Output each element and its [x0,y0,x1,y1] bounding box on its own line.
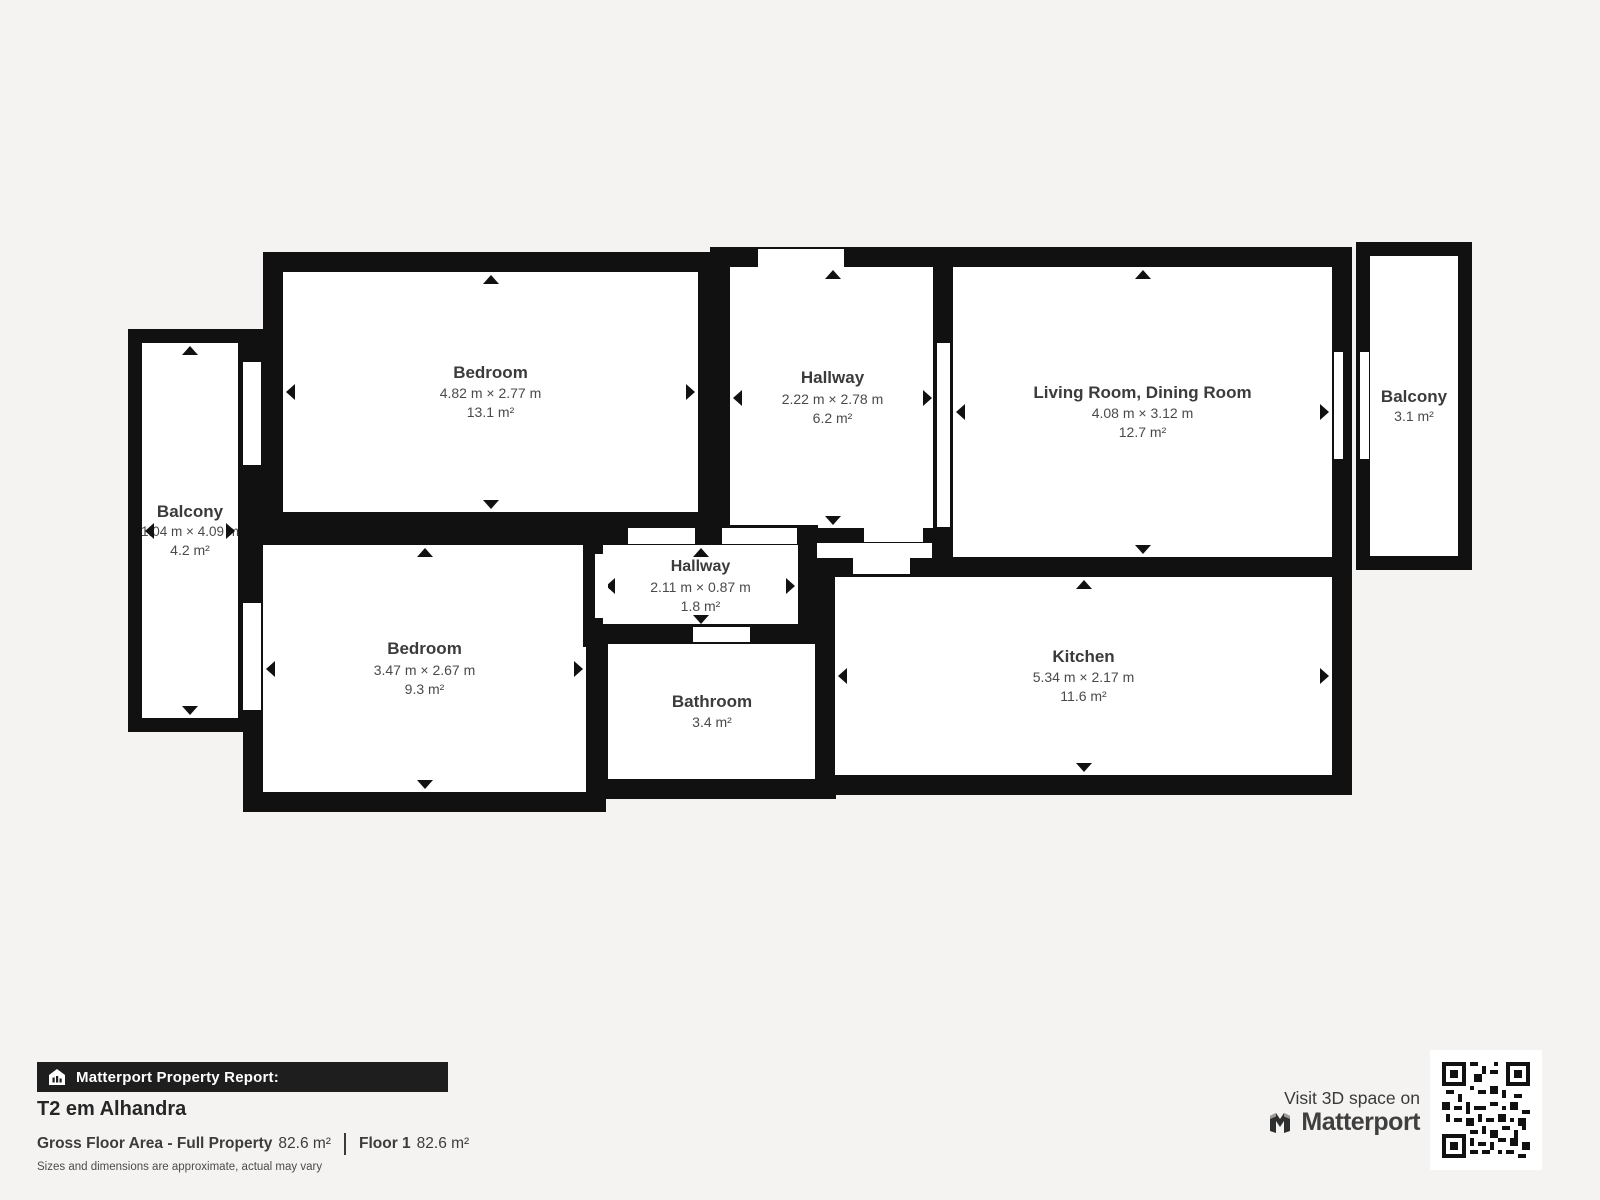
room-name: Kitchen [1052,646,1114,667]
dimension-arrow-right [923,390,932,406]
room-name: Bedroom [453,362,528,383]
room-area: 9.3 m² [405,680,445,699]
floor-plan: Bedroom 4.82 m × 2.77 m 13.1 m² Hallway … [0,0,1600,1200]
visit-3d-text: Visit 3D space on [1100,1088,1420,1109]
door-opening [595,554,608,618]
room-dimensions: 2.22 m × 2.78 m [782,390,884,409]
door-opening [853,558,910,574]
room-living-dining: Living Room, Dining Room 4.08 m × 3.12 m… [933,247,1352,577]
room-area: 4.2 m² [170,541,210,560]
room-bedroom-1: Bedroom 4.82 m × 2.77 m 13.1 m² [263,252,718,532]
room-dimensions: 4.08 m × 3.12 m [1092,404,1194,423]
door-opening [937,343,950,527]
floor-label: Floor 1 [359,1135,411,1153]
window-opening [1360,352,1369,459]
dimension-arrow-right [786,578,795,594]
dimension-arrow-up [483,275,499,284]
dimension-arrow-right [1320,668,1329,684]
dimension-arrow-left [266,661,275,677]
report-bar-label: Matterport Property Report: [76,1069,279,1086]
room-hallway-top: Hallway 2.22 m × 2.78 m 6.2 m² [710,247,955,548]
dimension-arrow-down [825,516,841,525]
room-name: Hallway [671,557,731,577]
room-name: Balcony [157,501,223,522]
room-area: 11.6 m² [1060,687,1106,706]
window-opening [243,603,261,710]
door-opening [864,528,923,542]
qr-code-pattern [1442,1062,1530,1158]
door-opening [817,543,932,558]
room-area: 13.1 m² [467,403,514,422]
dimension-arrow-up [182,346,198,355]
floor-area-stats: Gross Floor Area - Full Property 82.6 m²… [37,1133,469,1155]
window-opening [243,362,261,465]
dimension-arrow-up [693,548,709,557]
door-opening [628,528,695,544]
room-dimensions: 4.82 m × 2.77 m [440,384,542,403]
disclaimer-text: Sizes and dimensions are approximate, ac… [37,1161,322,1173]
room-name: Hallway [801,367,864,388]
room-name: Bathroom [672,691,752,712]
room-bathroom: Bathroom 3.4 m² [588,624,836,799]
dimension-arrow-right [686,384,695,400]
property-title: T2 em Alhandra [37,1098,186,1121]
dimension-arrow-down [693,615,709,624]
dimension-arrow-right [226,523,235,539]
matterport-logo-icon [1267,1110,1293,1136]
dimension-arrow-down [1076,763,1092,772]
dimension-arrow-left [956,404,965,420]
door-opening [693,627,750,642]
report-header-bar: Matterport Property Report: [37,1062,448,1092]
house-icon [48,1068,66,1086]
dimension-arrow-up [825,270,841,279]
room-dimensions: 5.34 m × 2.17 m [1033,668,1135,687]
gross-floor-area-label: Gross Floor Area - Full Property [37,1135,272,1153]
room-area: 3.4 m² [692,713,732,732]
dimension-arrow-down [417,780,433,789]
room-dimensions: 3.47 m × 2.67 m [374,661,476,680]
matterport-logo: Matterport [1100,1108,1420,1137]
matterport-wordmark: Matterport [1301,1108,1420,1137]
room-area: 1.8 m² [681,597,721,616]
dimension-arrow-left [145,523,154,539]
dimension-arrow-right [1320,404,1329,420]
dimension-arrow-left [838,668,847,684]
dimension-arrow-down [483,500,499,509]
window-opening [758,249,844,267]
dimension-arrow-up [1076,580,1092,589]
dimension-arrow-left [733,390,742,406]
gross-floor-area-value: 82.6 m² [278,1135,331,1153]
qr-code [1430,1050,1542,1170]
room-bedroom-2: Bedroom 3.47 m × 2.67 m 9.3 m² [243,525,606,812]
dimension-arrow-left [286,384,295,400]
room-area: 6.2 m² [813,409,853,428]
dimension-arrow-down [1135,545,1151,554]
floor-value: 82.6 m² [417,1135,470,1153]
room-name: Living Room, Dining Room [1033,382,1251,403]
dimension-arrow-down [182,706,198,715]
dimension-arrow-right [574,661,583,677]
room-name: Bedroom [387,638,462,659]
room-dimensions: 1.04 m × 4.09 m [141,523,239,541]
room-area: 3.1 m² [1394,407,1434,426]
room-dimensions: 2.11 m × 0.87 m [650,578,751,597]
dimension-arrow-up [1135,270,1151,279]
room-balcony-right: Balcony 3.1 m² [1356,242,1472,570]
window-opening [1334,352,1343,459]
stats-divider [344,1133,346,1155]
room-kitchen: Kitchen 5.34 m × 2.17 m 11.6 m² [815,557,1352,795]
room-name: Balcony [1381,386,1447,407]
door-opening [722,528,797,544]
room-area: 12.7 m² [1119,423,1166,442]
dimension-arrow-up [417,548,433,557]
